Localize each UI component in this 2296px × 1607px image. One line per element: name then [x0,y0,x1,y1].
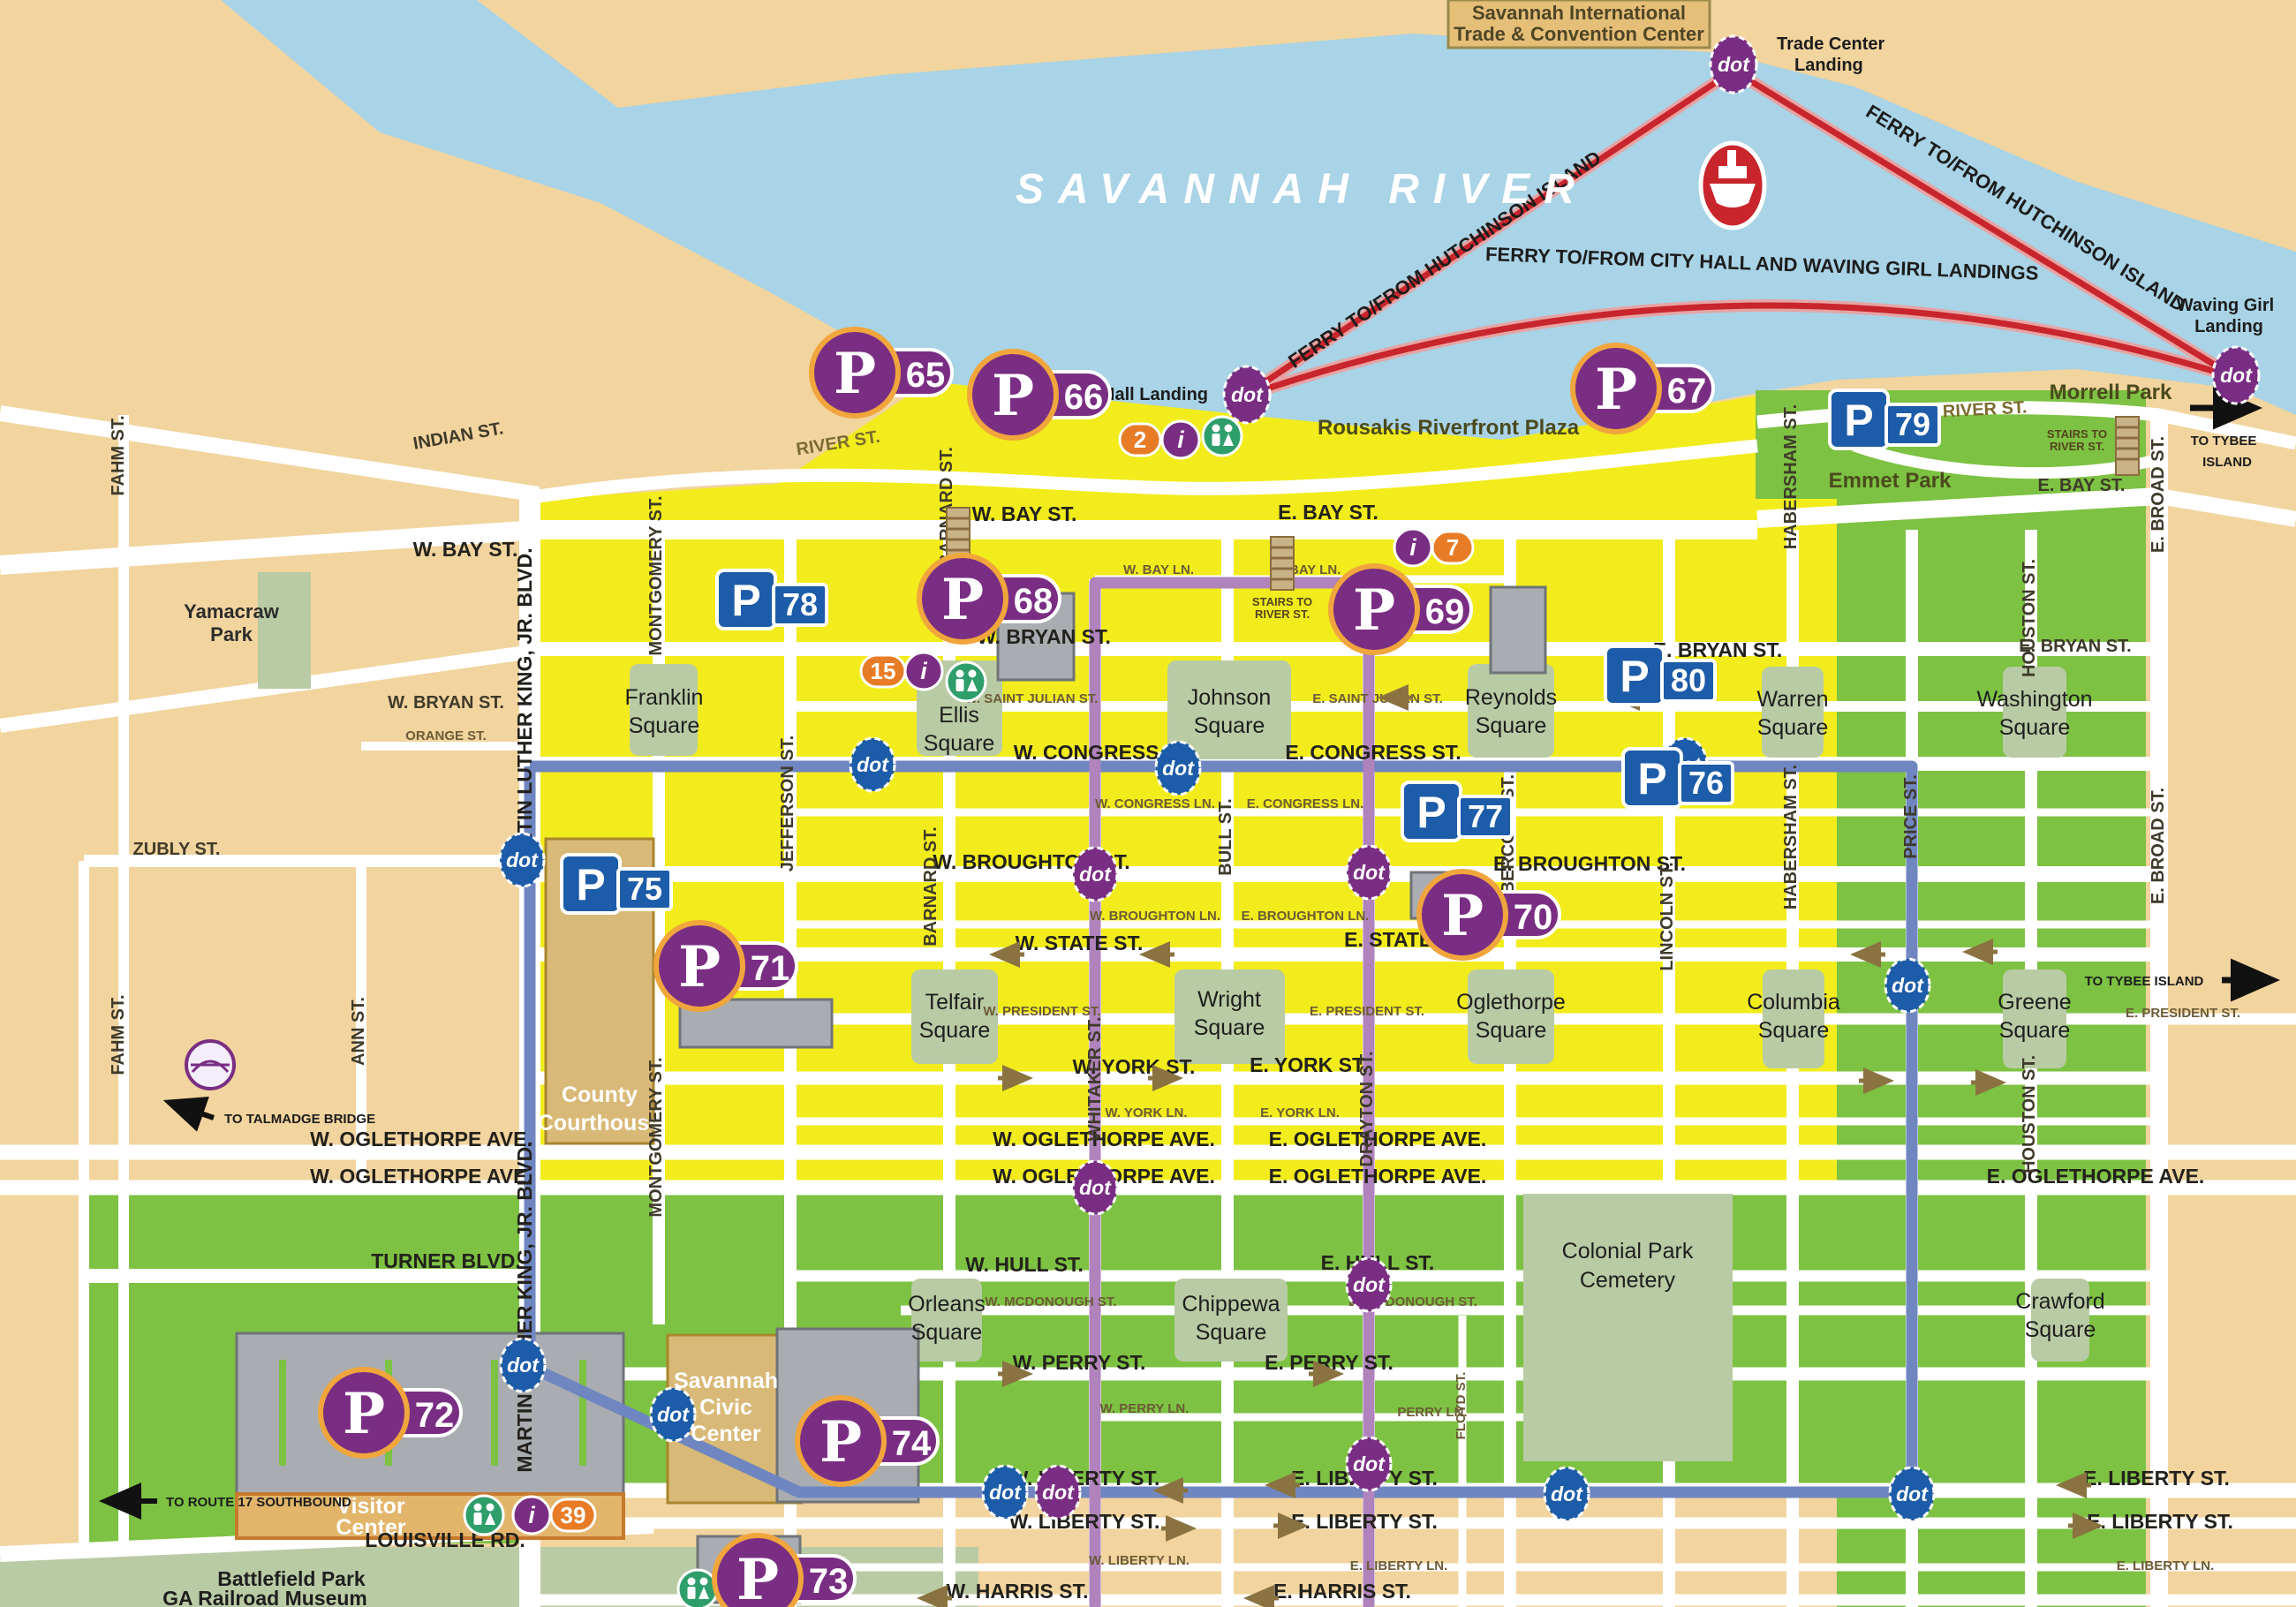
label-e-ogl-1: E. OGLETHORPE AVE. [1269,1128,1487,1151]
svg-text:dot: dot [1042,1481,1075,1504]
columbia-label-2: Square [1758,1018,1830,1043]
talmadge-label: TO TALMADGE BRIDGE [224,1112,375,1127]
svg-text:68: 68 [1014,582,1054,621]
yamacraw-label-1: Yamacraw [184,600,280,622]
trade-center-landing-2: Landing [1794,56,1863,75]
dot-stop-drayton-perry: dot [1347,1437,1391,1490]
svg-text:66: 66 [1064,378,1104,417]
svg-text:65: 65 [906,356,946,395]
label-e-york-ln: E. YORK LN. [1260,1105,1340,1120]
river-name: SAVANNAH RIVER [1016,166,1589,213]
svg-text:dot: dot [1079,1176,1112,1199]
svg-text:78: 78 [782,586,818,622]
svg-text:dot: dot [1718,53,1750,76]
label-houston-1: HOUSTON ST. [2020,559,2039,677]
label-e-broughton-ln: E. BROUGHTON LN. [1242,909,1370,924]
label-e-president-r: E. PRESIDENT ST. [2126,1006,2240,1021]
label-e-broad-2: E. BROAD ST. [2149,788,2168,904]
svg-text:dot: dot [989,1481,1022,1504]
label-w-perry-ln: W. PERRY LN. [1100,1401,1190,1416]
svg-text:P: P [678,934,721,1000]
label-e-ogl-2: E. OGLETHORPE AVE. [1269,1165,1487,1188]
route17-label: TO ROUTE 17 SOUTHBOUND [166,1495,351,1510]
info-2-group: 2 i [1120,417,1242,458]
svg-text:75: 75 [627,871,662,907]
oglethorpe-sq-label-2: Square [1476,1018,1547,1043]
svg-text:dot: dot [2220,364,2253,387]
franklin-label-1: Franklin [625,685,704,710]
telfair-label-1: Telfair [925,990,985,1015]
ga-railroad-label: GA Railroad Museum [162,1587,367,1607]
cemetery-block [1523,1194,1733,1461]
label-e-liberty-r2: E. LIBERTY ST. [2087,1510,2233,1533]
svg-text:P: P [343,1381,385,1447]
p69-structure [1491,587,1545,673]
reynolds-label-1: Reynolds [1465,685,1557,710]
svg-text:STAIRS TO: STAIRS TO [2047,427,2107,441]
label-zubly: ZUBLY ST. [133,840,221,859]
badge-7: 7 [1446,534,1459,561]
badge-39: 39 [561,1502,586,1528]
svg-text:P: P [1595,357,1637,423]
svg-text:70: 70 [1514,898,1553,937]
dot-stop-price-liberty: dot [1890,1467,1934,1520]
label-fahm-2: FAHM ST. [109,994,128,1075]
svg-text:80: 80 [1671,662,1706,698]
svg-text:P: P [834,341,876,407]
svg-text:dot: dot [1353,861,1386,884]
label-mlk-2: MARTIN LUTHER KING, JR. BLVD. [513,1141,536,1472]
dot-stop-liberty-mid: dot [1545,1467,1589,1520]
svg-text:P: P [1620,652,1649,701]
tybee-top-1: TO TYBEE [2191,434,2257,449]
savannah-parking-map: FERRY TO/FROM HUTCHINSON ISLAND FERRY TO… [0,0,2296,1607]
crawford-label-2: Square [2025,1317,2096,1342]
dot-stop-civic-corner: dot [651,1388,695,1441]
label-louisville: LOUISVILLE RD. [365,1528,525,1551]
trade-center-landing-1: Trade Center [1777,34,1884,54]
svg-text:i: i [1177,426,1184,453]
label-e-liberty-ln-1: E. LIBERTY LN. [1350,1558,1448,1573]
washington-label-1: Washington [1976,687,2092,712]
label-jefferson: JEFFERSON ST. [778,736,797,871]
waving-girl-landing-1: Waving Girl [2177,296,2274,315]
label-w-bay-c: W. BAY ST. [972,502,1077,525]
svg-text:dot: dot [857,753,889,776]
svg-text:77: 77 [1468,798,1503,834]
svg-text:P: P [736,1547,779,1607]
courthouse-label-2: Courthouse [538,1111,661,1135]
svg-text:P: P [1637,754,1666,803]
johnson-label-2: Square [1194,713,1265,738]
svg-text:dot: dot [1896,1483,1929,1505]
columbia-label-1: Columbia [1747,990,1840,1015]
label-e-perry: E. PERRY ST. [1265,1351,1393,1374]
label-turner: TURNER BLVD. [371,1249,521,1272]
svg-text:72: 72 [415,1396,455,1435]
svg-text:P: P [819,1409,862,1475]
label-w-harris: W. HARRIS ST. [946,1580,1088,1603]
label-w-ogl-1: W. OGLETHORPE AVE. [310,1128,532,1151]
oglethorpe-sq-label-1: Oglethorpe [1456,990,1566,1015]
dot-stop-city-hall: dot [1224,366,1270,423]
label-e-liberty-2: E. LIBERTY ST. [1291,1510,1438,1533]
label-w-liberty-1: W. LIBERTY ST. [1009,1467,1160,1490]
washington-square-block [2003,667,2066,758]
dot-stop-whitaker-liberty-purple: dot [1036,1466,1080,1519]
cemetery-label-2: Cemetery [1580,1268,1676,1293]
dot-stop-trade-center: dot [1711,36,1756,93]
civic-label-2: Civic [699,1395,752,1420]
label-w-liberty-2: W. LIBERTY ST. [1009,1510,1160,1533]
svg-text:P: P [1441,883,1484,949]
label-barnard-2: BARNARD ST. [921,826,940,947]
visitor-center-badges: i 39 [464,1496,595,1535]
map-canvas: FERRY TO/FROM HUTCHINSON ISLAND FERRY TO… [0,0,2296,1607]
svg-text:i: i [1409,534,1416,561]
dot-stop-congress-bull: dot [1156,742,1200,795]
dot-stop-mlk-zubly: dot [500,834,544,886]
label-w-broughton-ln: W. BROUGHTON LN. [1090,909,1220,924]
label-w-congress-ln: W. CONGRESS LN. [1095,796,1215,811]
svg-text:67: 67 [1667,372,1707,411]
label-habersham-1: HABERSHAM ST. [1781,404,1801,549]
label-e-congress-ln: E. CONGRESS LN. [1247,796,1364,811]
yamacraw-park-block [258,572,311,689]
label-houston-2: HOUSTON ST. [2020,1055,2039,1173]
svg-text:P: P [1353,577,1395,644]
svg-text:P: P [992,363,1034,429]
telfair-label-2: Square [919,1018,991,1043]
east-district-green [1837,499,2146,1607]
orleans-label-2: Square [911,1320,983,1345]
convention-center-label-1: Savannah International [1472,2,1686,24]
greene-label-2: Square [1999,1018,2071,1043]
washington-label-2: Square [1999,715,2071,740]
ellis-label-1: Ellis [939,703,979,728]
reynolds-square-block [1468,664,1554,758]
oglethorpe-square-block [1468,969,1554,1064]
label-e-harris: E. HARRIS ST. [1273,1580,1411,1603]
svg-text:dot: dot [507,1354,540,1377]
ellis-label-2: Square [924,731,995,756]
label-w-bay-w: W. BAY ST. [413,538,518,561]
label-e-congress: E. CONGRESS ST. [1285,741,1461,764]
label-habersham-2: HABERSHAM ST. [1781,765,1801,909]
label-price: PRICE ST. [1901,774,1921,859]
svg-text:RIVER ST.: RIVER ST. [2050,440,2104,453]
label-fahm-1: FAHM ST. [109,415,128,495]
restroom-icon-p73 [678,1570,717,1607]
dot-stop-whitaker-liberty-blue: dot [983,1466,1027,1519]
svg-text:dot: dot [506,849,539,871]
svg-text:P: P [576,860,605,909]
svg-text:dot: dot [1162,757,1195,780]
svg-text:dot: dot [1551,1483,1583,1505]
label-ann: ANN ST. [349,997,368,1066]
dot-stop-whitaker-broughton: dot [1073,848,1117,901]
label-w-mcdonough: W. MCDONOUGH ST. [985,1294,1116,1309]
warren-label-1: Warren [1756,687,1828,712]
label-lincoln: LINCOLN ST. [1658,862,1677,970]
label-w-hull: W. HULL ST. [965,1253,1084,1276]
dot-stop-drayton-oglethorpe: dot [1347,1258,1391,1311]
label-whitaker: WHITAKER ST. [1085,1017,1105,1142]
svg-text:i: i [920,658,927,684]
cemetery-label-1: Colonial Park [1562,1239,1694,1264]
restroom-icon-plaza [1203,417,1242,456]
dot-stop-drayton-broughton: dot [1347,846,1391,899]
civic-label-3: Center [691,1422,760,1446]
svg-text:dot: dot [1353,1452,1386,1475]
label-w-state: W. STATE ST. [1016,932,1144,954]
svg-text:dot: dot [1892,974,1924,997]
greene-label-1: Greene [1998,990,2071,1015]
label-bull: BULL ST. [1216,798,1235,875]
wright-label-2: Square [1194,1015,1265,1040]
dot-stop-whitaker-oglethorpe: dot [1073,1161,1117,1214]
label-e-stjulian: E. SAINT JULIAN ST. [1312,691,1443,706]
reynolds-label-2: Square [1476,713,1547,738]
label-e-liberty-ln-2: E. LIBERTY LN. [2117,1558,2215,1573]
label-w-liberty-ln: W. LIBERTY LN. [1089,1553,1190,1568]
svg-text:76: 76 [1688,765,1724,801]
label-orange: ORANGE ST. [405,728,487,743]
franklin-square-block [630,664,698,756]
svg-text:P: P [1416,788,1446,837]
label-w-bryan-w: W. BRYAN ST. [388,693,504,713]
svg-text:P: P [1844,396,1873,445]
svg-text:i: i [528,1502,535,1528]
ferry-ship-icon [1701,143,1764,228]
label-e-president: E. PRESIDENT ST. [1310,1004,1424,1019]
svg-text:69: 69 [1425,592,1465,631]
svg-text:STAIRS TO: STAIRS TO [1252,595,1312,608]
label-abercorn: ABERCORN ST. [1499,774,1518,907]
label-w-ogl-2: W. OGLETHORPE AVE. [310,1165,532,1188]
warren-label-2: Square [1757,715,1829,740]
svg-text:74: 74 [892,1424,932,1463]
waving-girl-landing-2: Landing [2194,317,2263,336]
label-e-york: E. YORK ST. [1250,1053,1368,1076]
label-montgomery-1: MONTGOMERY ST. [646,495,666,655]
svg-text:dot: dot [1079,863,1112,886]
badge-15: 15 [871,658,896,684]
label-e-bryan-1: E. BRYAN ST. [1653,638,1783,661]
chippewa-label-2: Square [1196,1320,1267,1345]
civic-label-1: Savannah [674,1369,778,1393]
label-e-bay-c: E. BAY ST. [1278,501,1378,524]
label-w-president: W. PRESIDENT ST. [983,1004,1100,1019]
label-e-bay-r: E. BAY ST. [2038,476,2126,495]
svg-text:RIVER ST.: RIVER ST. [1255,607,1310,621]
wright-label-1: Wright [1197,987,1261,1012]
orleans-label-1: Orleans [908,1292,986,1317]
dot-stop-congress-franklin: dot [850,738,895,791]
dot-stop-price-president: dot [1885,959,1930,1012]
svg-text:P: P [941,567,984,633]
svg-text:dot: dot [1353,1273,1386,1296]
warren-square-block [1762,667,1824,758]
svg-text:P: P [731,576,760,625]
label-drayton: DRAYTON ST. [1357,1051,1377,1166]
label-w-bay-ln: W. BAY LN. [1123,562,1194,577]
morrell-park-label: Morrell Park [2050,381,2172,404]
johnson-label-1: Johnson [1188,685,1272,710]
label-mlk-1: MARTIN LUTHER KING, JR. BLVD. [513,547,536,879]
yamacraw-label-2: Park [210,623,253,645]
label-w-stjulian: W. SAINT JULIAN ST. [965,691,1099,706]
svg-text:dot: dot [657,1403,690,1426]
emmet-park-label: Emmet Park [1829,469,1952,493]
restroom-icon-visitor [464,1496,503,1535]
label-w-perry: W. PERRY ST. [1013,1351,1146,1374]
label-e-liberty-r1: E. LIBERTY ST. [2083,1467,2230,1490]
label-montgomery-2: MONTGOMERY ST. [646,1057,666,1217]
svg-text:79: 79 [1895,406,1930,442]
chippewa-label-1: Chippewa [1182,1292,1280,1317]
tybee-mid: TO TYBEE ISLAND [2085,974,2204,989]
restroom-icon-ellis [947,662,986,701]
crawford-label-1: Crawford [2015,1289,2104,1314]
courthouse-label-1: County [562,1083,638,1107]
convention-center-label-2: Trade & Convention Center [1454,23,1704,45]
svg-text:dot: dot [1231,383,1264,406]
dot-stop-mlk-civic: dot [501,1339,545,1392]
label-floyd: FLOYD ST. [1454,1372,1469,1440]
label-e-broad-1: E. BROAD ST. [2149,436,2168,553]
rousakis-label: Rousakis Riverfront Plaza [1318,416,1580,440]
badge-2: 2 [1134,426,1146,453]
dot-stop-waving-girl: dot [2213,347,2259,404]
svg-text:71: 71 [751,949,790,988]
label-w-york-ln: W. YORK LN. [1105,1105,1187,1120]
svg-text:73: 73 [809,1562,849,1601]
franklin-label-2: Square [629,713,700,738]
tybee-top-2: ISLAND [2202,455,2252,470]
